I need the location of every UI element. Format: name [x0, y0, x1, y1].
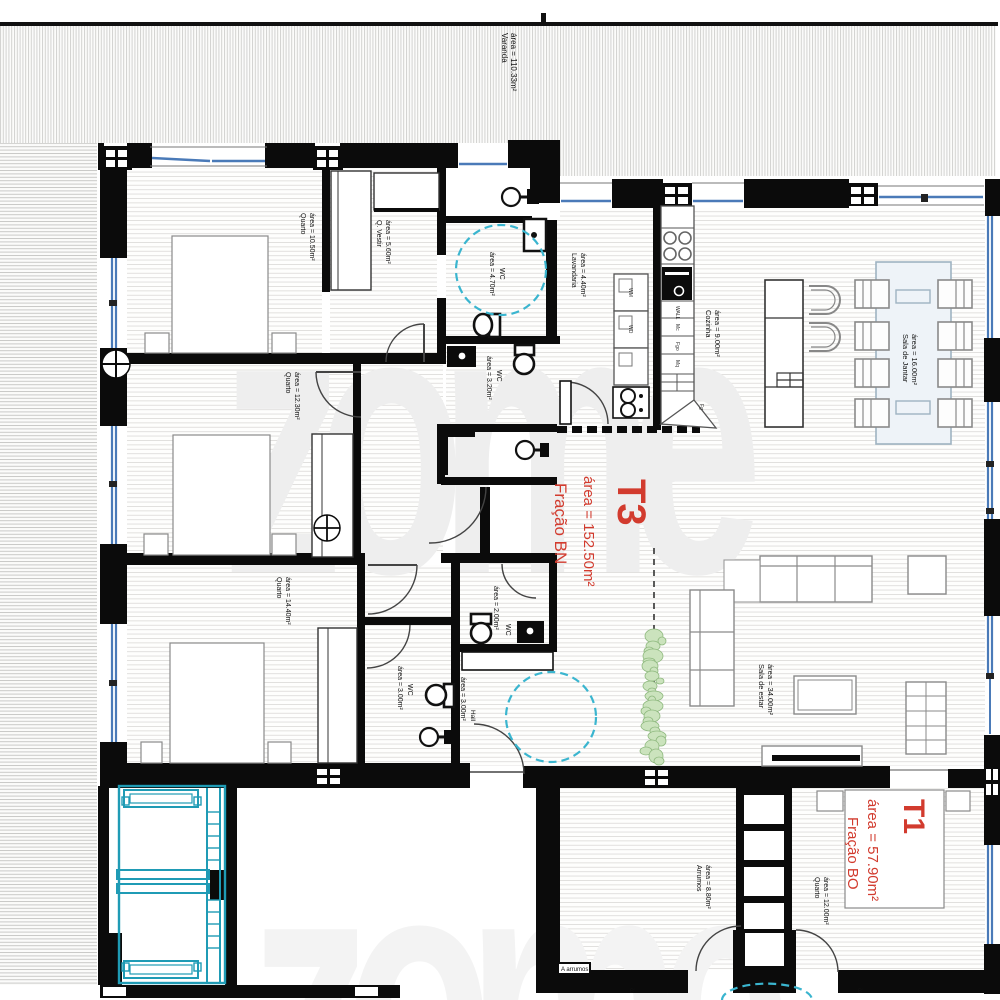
svg-text:área = 3.20m²: área = 3.20m² [485, 356, 492, 400]
svg-text:Q. Vestir: Q. Vestir [375, 220, 382, 248]
svg-text:WC: WC [406, 684, 413, 696]
svg-text:Lavandaria: Lavandaria [570, 253, 577, 288]
svg-text:área = 12.00m²: área = 12.00m² [822, 877, 829, 925]
svg-text:área = 10.50m²: área = 10.50m² [308, 213, 315, 261]
svg-text:®: ® [658, 452, 683, 490]
svg-text:área = 152.50m²: área = 152.50m² [580, 476, 597, 587]
svg-text:A arrumos: A arrumos [561, 967, 588, 973]
svg-text:área = 3.00m²: área = 3.00m² [459, 677, 466, 721]
svg-text:área = 57.90m²: área = 57.90m² [864, 799, 881, 901]
svg-text:WC: WC [495, 370, 502, 382]
svg-text:Fg: Fg [698, 404, 704, 410]
svg-text:Arrumos: Arrumos [695, 865, 702, 892]
svg-text:Fração BN: Fração BN [551, 483, 570, 564]
svg-text:WM: WM [627, 288, 633, 297]
svg-text:Sala de estar: Sala de estar [757, 664, 766, 709]
svg-text:T3: T3 [609, 479, 653, 526]
svg-text:WC: WC [498, 268, 505, 280]
svg-text:Quarto: Quarto [813, 877, 820, 899]
svg-text:Cozinha: Cozinha [704, 310, 713, 338]
svg-text:área = 8.80m²: área = 8.80m² [704, 865, 711, 909]
svg-text:área = 12.30m²: área = 12.30m² [293, 372, 300, 420]
svg-text:área = 9.00m²: área = 9.00m² [713, 310, 722, 357]
svg-text:Varanda: Varanda [500, 33, 509, 63]
svg-text:área = 16.00m²: área = 16.00m² [910, 334, 919, 386]
svg-text:Quarto: Quarto [275, 577, 282, 599]
svg-text:T1: T1 [897, 799, 930, 834]
svg-text:área = 2.00m²: área = 2.00m² [492, 586, 499, 630]
svg-text:Hall: Hall [469, 710, 476, 722]
svg-text:WD: WD [627, 325, 633, 334]
svg-text:área = 4.40m²: área = 4.40m² [579, 253, 586, 297]
svg-text:área = 110.33m²: área = 110.33m² [509, 33, 518, 92]
svg-text:Quarto: Quarto [299, 213, 306, 235]
svg-text:área = 3.00m²: área = 3.00m² [396, 666, 403, 710]
svg-text:área = 5.60m²: área = 5.60m² [384, 220, 391, 264]
svg-text:Mc: Mc [674, 324, 680, 331]
svg-text:B': B' [630, 989, 635, 995]
svg-text:WC: WC [504, 624, 511, 636]
svg-text:WALL: WALL [674, 306, 680, 320]
svg-text:B': B' [858, 989, 863, 995]
svg-text:área = 4.70m²: área = 4.70m² [488, 252, 495, 296]
svg-text:Mq: Mq [674, 360, 680, 367]
svg-text:Sala de Jantar: Sala de Jantar [901, 334, 910, 383]
svg-text:área = 34.00m²: área = 34.00m² [766, 664, 775, 716]
svg-text:Fração BO: Fração BO [844, 817, 861, 890]
svg-text:área = 14.40m²: área = 14.40m² [284, 577, 291, 625]
svg-text:Fgo: Fgo [674, 342, 680, 351]
svg-text:Quarto: Quarto [284, 372, 291, 394]
